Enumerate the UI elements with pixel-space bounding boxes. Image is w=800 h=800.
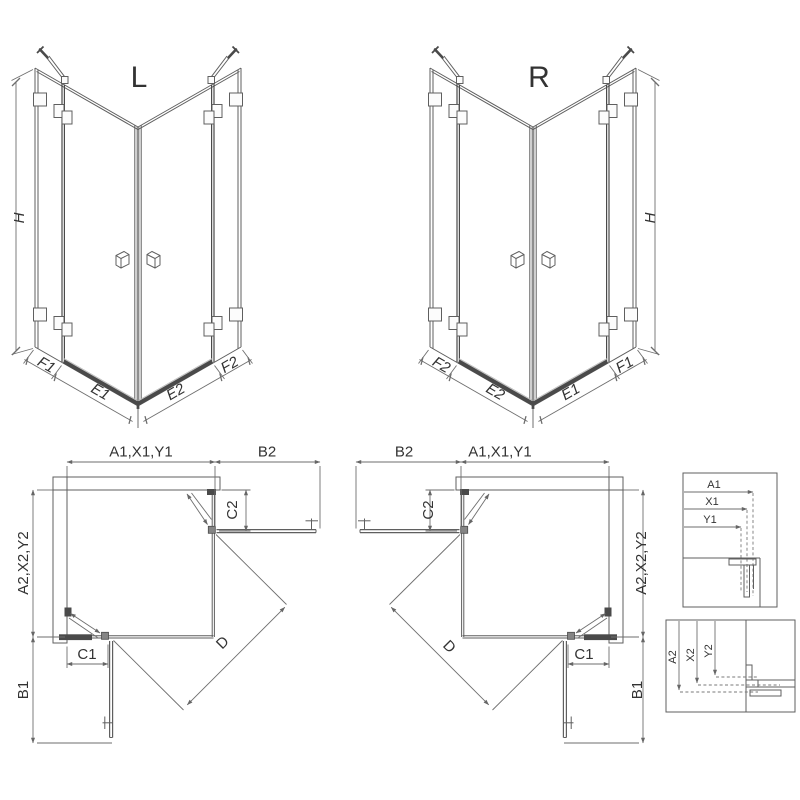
detail-label-x2: X2 [685,648,697,661]
plan-view-left: A1,X1,Y1 B2 A2,X2,Y2 B1 C2 C1 D [15,444,320,744]
drawing-canvas: L H F1 E1 E2 F2 R H F2 E2 E1 F1 A1,X1,Y1… [0,0,800,800]
detail-label-x1: X1 [705,496,718,508]
technical-drawing-sheet: L H F1 E1 E2 F2 R H F2 E2 E1 F1 A1,X1,Y1… [0,0,800,800]
detail-label-y1: Y1 [703,514,716,526]
dim-label-c1-left: C1 [77,646,96,663]
dim-label-f1-left: F1 [34,353,58,376]
iso-view-right: R H F2 E2 E1 F1 [419,47,660,429]
detail-label-a1: A1 [707,479,720,491]
detail-label-y2: Y2 [703,644,715,657]
plan-left-graphics [33,462,320,743]
dim-label-a2x2y2-right: A2,X2,Y2 [633,531,650,594]
dim-label-b1-left: B1 [15,681,32,699]
detail-label-a2: A2 [667,650,679,663]
dim-label-c2-left: C2 [224,500,241,519]
dim-label-a2x2y2-left: A2,X2,Y2 [15,531,32,594]
dim-label-a1x1y1-right: A1,X1,Y1 [468,444,531,461]
dim-label-d-right: D [439,637,459,657]
variant-label-left: L [131,61,148,94]
wall-top-right-plan [456,477,623,490]
wall-side-left-plan [53,477,67,643]
detail-box-widths: A1 X1 Y1 [683,473,777,607]
dim-label-f1-right: F1 [613,353,637,376]
dim-label-h-right: H [642,212,659,223]
dim-label-d-left: D [213,633,233,653]
plan-view-right: A1,X1,Y1 B2 A2,X2,Y2 B1 C2 C1 D [356,444,650,744]
detail-box-depths: A2 X2 Y2 [666,620,795,712]
dim-label-b1-right: B1 [629,681,646,699]
dim-label-c1-right: C1 [574,646,593,663]
dim-label-c2-right: C2 [420,500,437,519]
dim-label-b2-right: B2 [395,444,413,461]
dim-label-f2-left: F2 [218,353,242,377]
variant-label-right: R [528,61,550,94]
iso-view-left: L H F1 E1 E2 F2 [11,47,253,429]
dim-label-b2-left: B2 [258,444,276,461]
dim-label-e2-left: E2 [164,380,189,404]
wall-side-right-plan [609,477,623,643]
dim-label-e2-right: E2 [483,380,508,404]
plan-right-graphics [356,462,643,743]
dim-label-h-left: H [11,212,28,223]
wall-top-left-plan [53,477,220,490]
dim-label-a1x1y1-left: A1,X1,Y1 [109,444,172,461]
